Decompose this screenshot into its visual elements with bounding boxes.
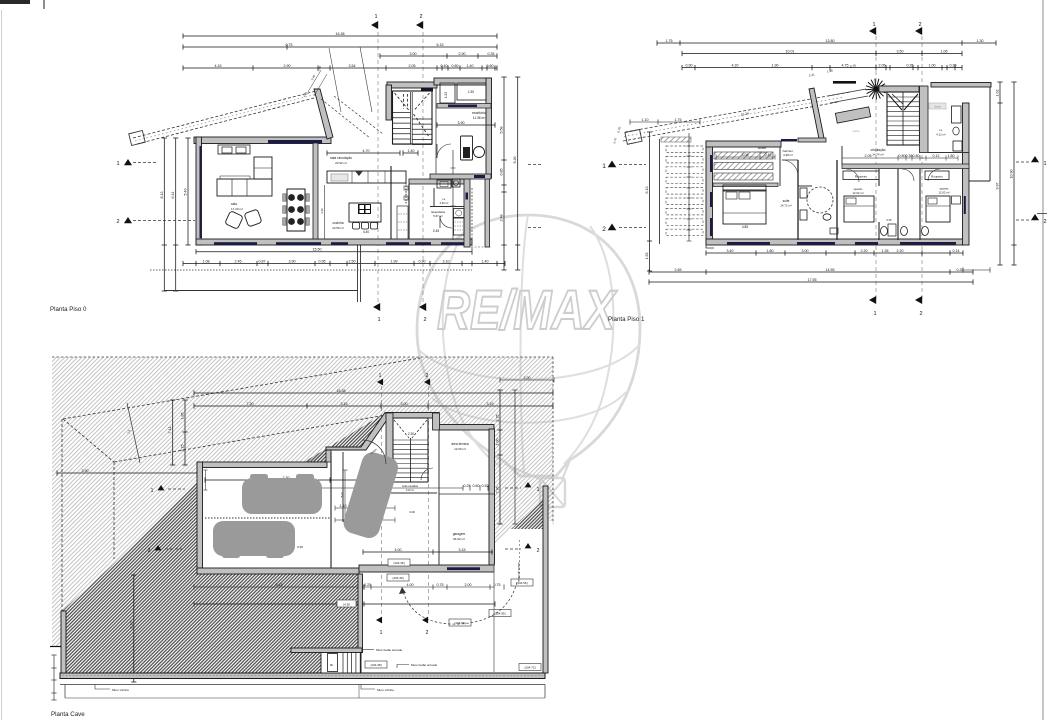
svg-text:0.60: 0.60 xyxy=(473,484,480,488)
svg-text:1: 1 xyxy=(537,487,540,493)
svg-text:0.75: 0.75 xyxy=(494,583,501,587)
svg-text:2: 2 xyxy=(419,14,422,20)
svg-text:[104.72]: [104.72] xyxy=(525,666,536,670)
svg-text:2.90: 2.90 xyxy=(459,52,466,56)
svg-text:2: 2 xyxy=(537,548,540,554)
svg-text:1.02: 1.02 xyxy=(996,90,1000,97)
svg-text:Roupeiro: Roupeiro xyxy=(931,174,943,178)
svg-text:0.35: 0.35 xyxy=(950,63,957,67)
svg-text:6.15: 6.15 xyxy=(437,43,444,47)
svg-text:1.35: 1.35 xyxy=(882,249,889,253)
svg-text:6.13: 6.13 xyxy=(645,187,649,194)
svg-text:0.52: 0.52 xyxy=(482,484,489,488)
svg-text:0.40: 0.40 xyxy=(441,64,448,68)
svg-text:1.40: 1.40 xyxy=(408,149,415,153)
svg-text:4.75: 4.75 xyxy=(842,63,849,67)
svg-text:0.95: 0.95 xyxy=(319,259,326,263)
svg-text:4.00: 4.00 xyxy=(395,548,402,552)
svg-text:1.10: 1.10 xyxy=(642,118,649,122)
svg-text:1.80: 1.80 xyxy=(948,154,955,158)
svg-text:i.s.: i.s. xyxy=(442,197,446,201)
svg-text:0.75: 0.75 xyxy=(286,43,293,47)
svg-text:3.15: 3.15 xyxy=(181,445,185,452)
svg-text:2: 2 xyxy=(426,630,429,636)
svg-text:rampa de acesso: rampa de acesso xyxy=(517,561,521,581)
svg-text:2.20: 2.20 xyxy=(861,249,868,253)
svg-text:2.65: 2.65 xyxy=(675,268,682,272)
svg-text:[104.30]: [104.30] xyxy=(393,576,404,580)
svg-text:2.90: 2.90 xyxy=(284,64,291,68)
svg-text:3.90: 3.90 xyxy=(82,469,89,473)
svg-text:0.80: 0.80 xyxy=(913,154,920,158)
svg-text:1.92: 1.92 xyxy=(444,92,448,98)
svg-text:7.36: 7.36 xyxy=(496,487,500,494)
svg-text:cozinha: cozinha xyxy=(333,221,344,225)
svg-text:3.00: 3.00 xyxy=(409,510,415,514)
svg-text:2.45: 2.45 xyxy=(235,259,242,263)
svg-text:17.55: 17.55 xyxy=(808,278,817,282)
svg-text:4.15: 4.15 xyxy=(215,64,222,68)
svg-text:1.80: 1.80 xyxy=(767,249,774,253)
svg-text:11.36 m²: 11.36 m² xyxy=(473,116,485,120)
svg-text:10.56 m²: 10.56 m² xyxy=(332,226,344,230)
svg-text:1: 1 xyxy=(873,311,876,317)
svg-text:3.08: 3.08 xyxy=(742,153,749,157)
svg-text:0.60: 0.60 xyxy=(452,64,459,68)
svg-text:14.55: 14.55 xyxy=(826,268,835,272)
svg-text:8.13: 8.13 xyxy=(160,192,164,199)
svg-text:3.00: 3.00 xyxy=(401,402,408,406)
svg-text:12.02 m²: 12.02 m² xyxy=(852,191,863,195)
svg-text:2: 2 xyxy=(602,226,606,233)
svg-text:0.35: 0.35 xyxy=(906,154,913,158)
svg-text:2: 2 xyxy=(918,22,921,28)
svg-text:12.00 m²: 12.00 m² xyxy=(454,447,466,451)
svg-text:2: 2 xyxy=(1043,219,1046,225)
svg-text:1.99: 1.99 xyxy=(391,259,398,263)
svg-text:2.00: 2.00 xyxy=(465,583,472,587)
svg-text:Muro vizinho: Muro vizinho xyxy=(377,688,394,692)
svg-text:0.75: 0.75 xyxy=(437,583,444,587)
svg-text:3.40: 3.40 xyxy=(727,249,734,253)
svg-text:2.50: 2.50 xyxy=(349,259,356,263)
svg-text:5.67 m²: 5.67 m² xyxy=(433,214,443,218)
svg-text:1.00: 1.00 xyxy=(496,439,500,446)
svg-text:3.00: 3.00 xyxy=(802,249,809,253)
svg-text:2: 2 xyxy=(148,548,151,554)
svg-text:6.44: 6.44 xyxy=(171,192,175,199)
svg-text:[104.58]: [104.58] xyxy=(455,621,466,625)
svg-text:2: 2 xyxy=(423,317,426,323)
svg-text:3.90: 3.90 xyxy=(458,121,465,125)
svg-text:closet: closet xyxy=(934,105,941,109)
svg-text:9.15: 9.15 xyxy=(276,583,283,587)
svg-text:2.35: 2.35 xyxy=(496,415,500,422)
svg-text:12.02 m²: 12.02 m² xyxy=(938,191,949,195)
svg-text:[104.46]: [104.46] xyxy=(394,561,405,565)
svg-text:1.75: 1.75 xyxy=(666,39,673,43)
svg-text:2: 2 xyxy=(919,311,922,317)
svg-text:2.00: 2.00 xyxy=(524,376,531,380)
svg-text:0.35: 0.35 xyxy=(488,52,495,56)
svg-text:8.10: 8.10 xyxy=(129,622,133,629)
svg-text:2.05: 2.05 xyxy=(879,63,886,67)
svg-text:1.90: 1.90 xyxy=(772,63,779,67)
svg-text:circulação: circulação xyxy=(871,148,886,152)
svg-text:0.87: 0.87 xyxy=(259,259,266,263)
svg-text:[104.95]: [104.95] xyxy=(495,612,506,616)
svg-text:0.95: 0.95 xyxy=(297,545,303,549)
svg-text:[104.38]: [104.38] xyxy=(371,663,382,667)
svg-text:i.s.: i.s. xyxy=(939,128,943,132)
svg-text:5.58: 5.58 xyxy=(500,127,504,134)
svg-text:9.97: 9.97 xyxy=(996,183,1000,190)
svg-text:10.90: 10.90 xyxy=(1010,170,1014,179)
svg-text:1.75: 1.75 xyxy=(675,118,682,122)
svg-text:garagem: garagem xyxy=(453,532,466,536)
svg-text:(4.30: (4.30 xyxy=(343,602,350,606)
svg-text:2: 2 xyxy=(426,373,429,379)
svg-text:0.14: 0.14 xyxy=(953,249,960,253)
svg-text:2.05: 2.05 xyxy=(865,154,872,158)
svg-text:3.50: 3.50 xyxy=(897,49,904,53)
svg-text:4.85: 4.85 xyxy=(742,225,748,229)
svg-text:Muro betão armado: Muro betão armado xyxy=(376,648,403,652)
svg-text:1: 1 xyxy=(872,22,875,28)
svg-text:sobe escadas: sobe escadas xyxy=(402,484,419,488)
svg-text:0.35: 0.35 xyxy=(907,63,914,67)
svg-text:B: B xyxy=(330,664,334,666)
svg-text:9.10 m²: 9.10 m² xyxy=(406,489,414,492)
svg-text:3.10: 3.10 xyxy=(443,259,450,263)
svg-text:2.48: 2.48 xyxy=(500,215,504,222)
svg-text:0.35: 0.35 xyxy=(957,268,964,272)
svg-text:sala circulação: sala circulação xyxy=(330,156,352,160)
svg-text:Planta Piso 0: Planta Piso 0 xyxy=(50,306,87,313)
svg-text:1.00: 1.00 xyxy=(929,63,936,67)
svg-text:3.15: 3.15 xyxy=(459,548,466,552)
svg-text:9.26: 9.26 xyxy=(513,157,517,164)
svg-text:área técnica: área técnica xyxy=(451,442,469,446)
svg-text:3.00: 3.00 xyxy=(410,52,417,56)
svg-text:4.12 m²: 4.12 m² xyxy=(936,133,946,137)
svg-text:3.46: 3.46 xyxy=(320,208,324,214)
svg-text:suite: suite xyxy=(783,199,790,203)
svg-text:2: 2 xyxy=(116,219,119,225)
svg-text:1.50: 1.50 xyxy=(468,90,474,94)
svg-text:Muro betão armado: Muro betão armado xyxy=(411,663,438,667)
svg-text:1.06: 1.06 xyxy=(941,49,948,53)
svg-text:0.90: 0.90 xyxy=(419,259,426,263)
svg-text:RE/MAX: RE/MAX xyxy=(437,278,618,341)
svg-text:10.01: 10.01 xyxy=(786,49,795,53)
svg-text:4.38 m²: 4.38 m² xyxy=(783,153,793,157)
svg-text:0.85: 0.85 xyxy=(500,169,504,176)
svg-text:14.74 m²: 14.74 m² xyxy=(872,153,883,157)
svg-text:sala: sala xyxy=(231,202,237,206)
svg-text:1.40: 1.40 xyxy=(482,259,489,263)
svg-text:1: 1 xyxy=(116,161,119,167)
svg-text:2.90 m²: 2.90 m² xyxy=(440,201,449,205)
svg-text:1.08: 1.08 xyxy=(203,259,210,263)
svg-text:Planta Piso 1: Planta Piso 1 xyxy=(608,316,645,323)
svg-text:4.70: 4.70 xyxy=(363,149,370,153)
svg-text:1: 1 xyxy=(374,14,377,20)
svg-text:3.15: 3.15 xyxy=(487,402,494,406)
svg-text:1: 1 xyxy=(602,163,606,170)
svg-text:1.40: 1.40 xyxy=(467,64,474,68)
svg-text:0.25: 0.25 xyxy=(464,484,471,488)
svg-text:2.05: 2.05 xyxy=(409,64,416,68)
svg-text:5.0: 5.0 xyxy=(341,493,345,498)
svg-text:0.45: 0.45 xyxy=(765,153,772,157)
svg-text:vazio: vazio xyxy=(852,129,859,133)
svg-text:0.90: 0.90 xyxy=(686,63,693,67)
svg-text:Muro vizinho: Muro vizinho xyxy=(112,688,129,692)
svg-text:0.60: 0.60 xyxy=(487,64,494,68)
svg-text:4.20: 4.20 xyxy=(732,63,739,67)
svg-text:5.40: 5.40 xyxy=(184,189,188,196)
svg-text:1: 1 xyxy=(377,317,380,323)
svg-text:3.45: 3.45 xyxy=(341,402,348,406)
svg-text:16.38: 16.38 xyxy=(337,389,346,393)
svg-text:closet: closet xyxy=(758,146,766,150)
svg-text:1.85: 1.85 xyxy=(181,413,185,420)
svg-text:0.80: 0.80 xyxy=(899,154,906,158)
svg-text:1: 1 xyxy=(151,488,154,494)
svg-text:17.40 m²: 17.40 m² xyxy=(231,207,243,211)
svg-text:4.00: 4.00 xyxy=(407,583,414,587)
svg-text:3.54: 3.54 xyxy=(349,64,356,68)
svg-text:Planta Cave: Planta Cave xyxy=(51,711,85,718)
svg-text:15.50: 15.50 xyxy=(313,248,322,252)
svg-text:16.38: 16.38 xyxy=(336,32,345,36)
svg-text:1.10: 1.10 xyxy=(340,504,347,508)
svg-text:3.90: 3.90 xyxy=(289,259,296,263)
svg-text:13.80: 13.80 xyxy=(826,39,835,43)
svg-text:1: 1 xyxy=(379,373,382,379)
svg-text:1: 1 xyxy=(380,630,383,636)
svg-text:7.41: 7.41 xyxy=(168,427,172,434)
svg-text:1: 1 xyxy=(1043,161,1046,167)
svg-text:2.30: 2.30 xyxy=(408,432,414,436)
svg-text:0.12: 0.12 xyxy=(933,154,940,158)
svg-text:4.40: 4.40 xyxy=(363,230,369,234)
svg-text:94.92 m²: 94.92 m² xyxy=(453,537,465,541)
svg-text:1.53: 1.53 xyxy=(645,253,649,260)
svg-text:20.92 m²: 20.92 m² xyxy=(335,161,347,165)
svg-text:0.45: 0.45 xyxy=(886,218,892,222)
svg-text:14.72 m²: 14.72 m² xyxy=(780,204,791,208)
svg-text:1.30: 1.30 xyxy=(977,39,984,43)
svg-text:2.45: 2.45 xyxy=(433,229,439,233)
svg-text:escritório: escritório xyxy=(472,111,486,115)
svg-text:7.30: 7.30 xyxy=(247,402,254,406)
svg-text:2.20: 2.20 xyxy=(897,249,904,253)
